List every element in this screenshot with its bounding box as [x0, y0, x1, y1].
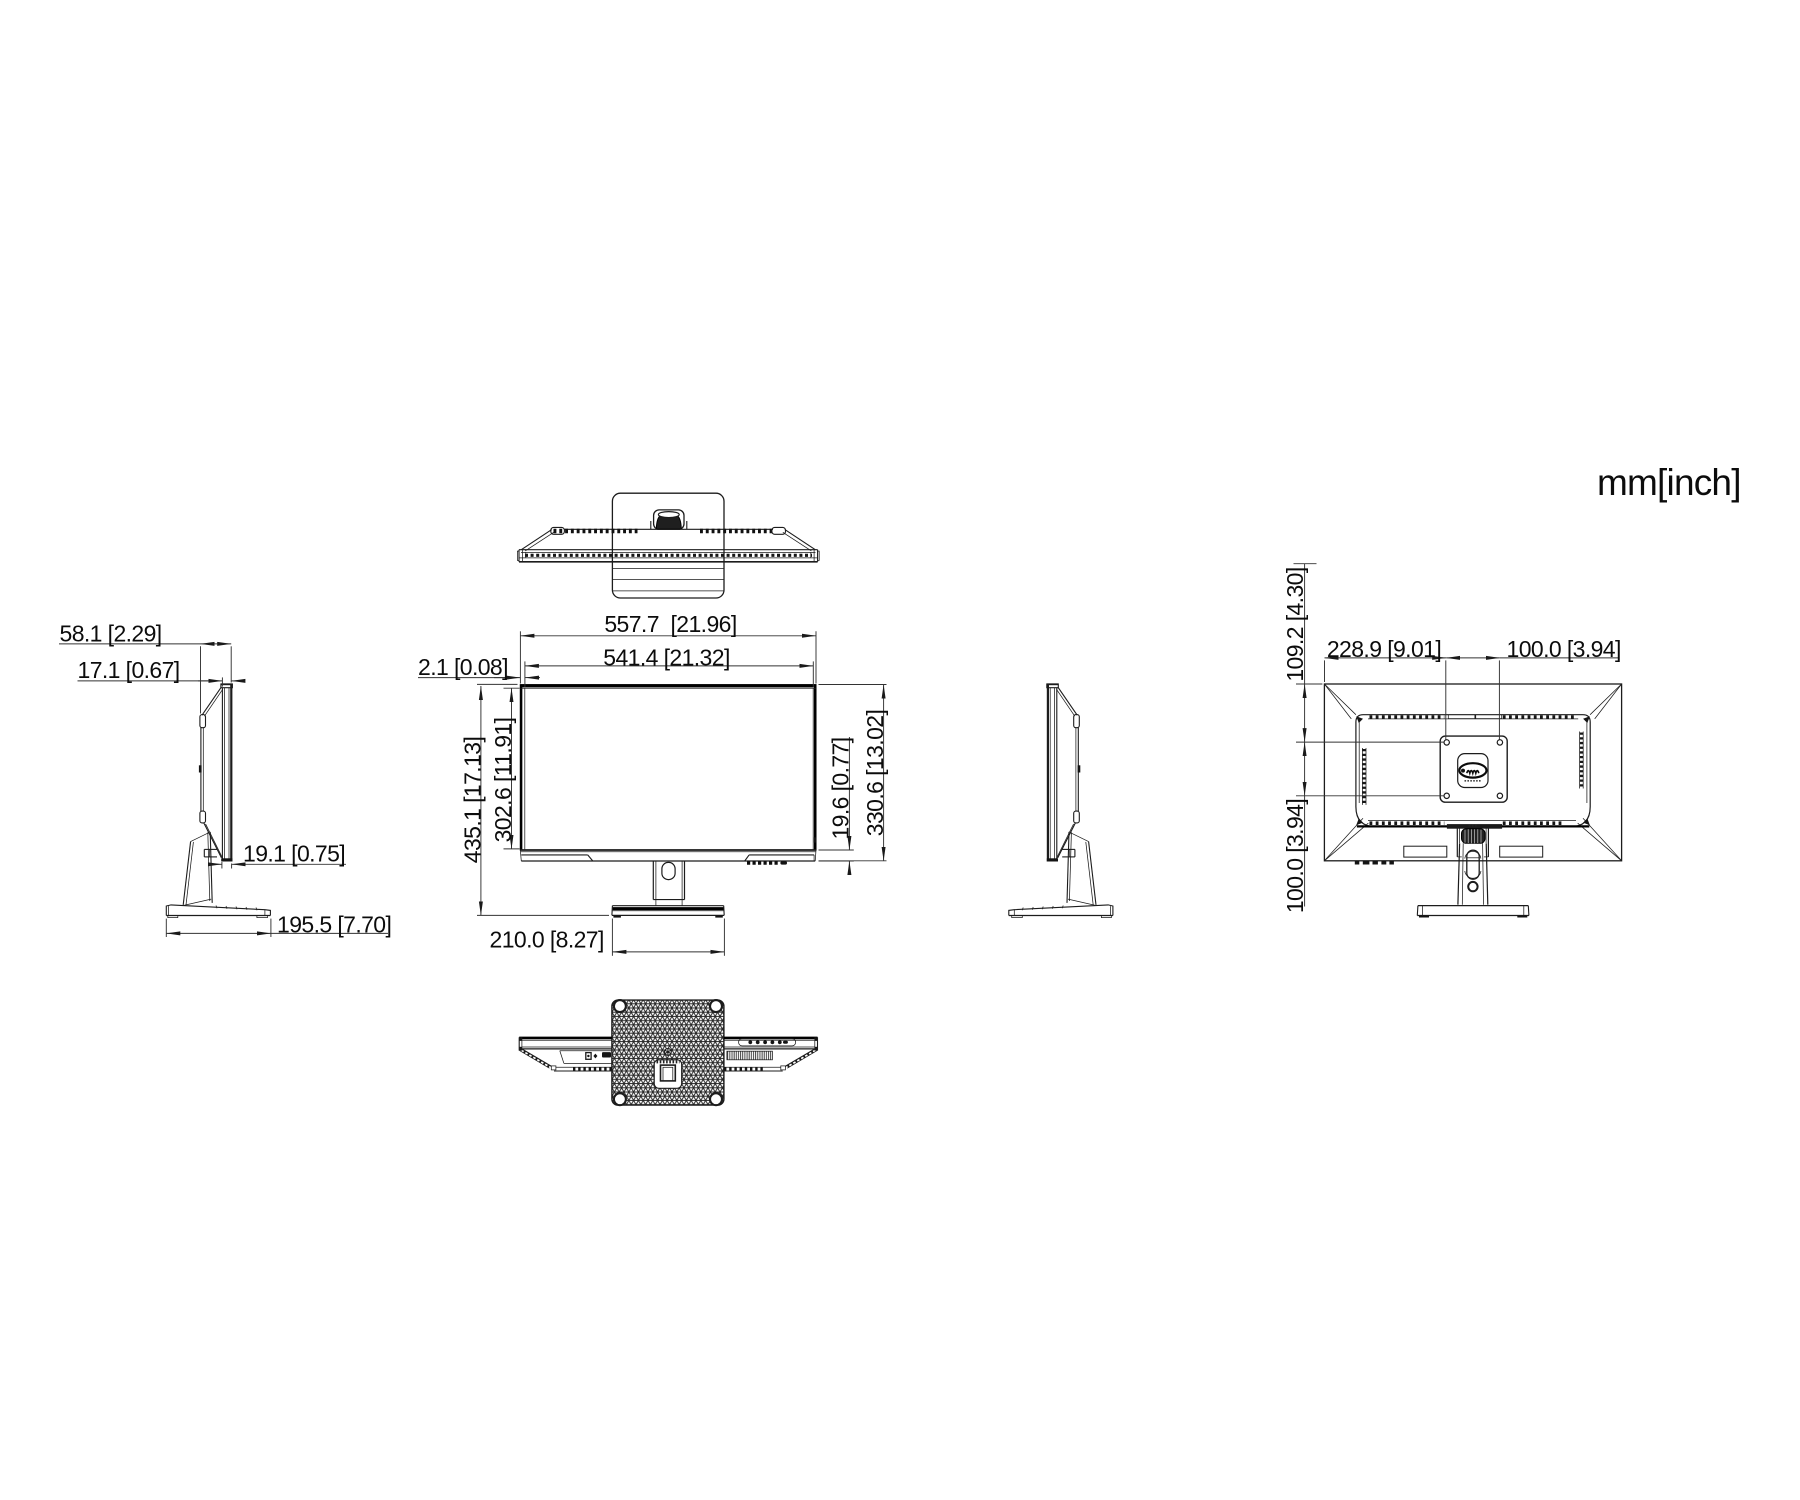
svg-text:435.1 [17.13]: 435.1 [17.13]	[459, 737, 485, 863]
svg-text:541.4 [21.32]: 541.4 [21.32]	[603, 645, 729, 671]
svg-text:195.5 [7.70]: 195.5 [7.70]	[277, 911, 391, 937]
svg-text:58.1 [2.29]: 58.1 [2.29]	[60, 620, 162, 646]
svg-text:109.2 [4.30]: 109.2 [4.30]	[1282, 567, 1308, 681]
svg-text:19.1 [0.75]: 19.1 [0.75]	[243, 840, 345, 866]
svg-text:557.7 [21.96]: 557.7 [21.96]	[604, 611, 736, 637]
svg-text:17.1 [0.67]: 17.1 [0.67]	[78, 657, 180, 683]
svg-text:2.1 [0.08]: 2.1 [0.08]	[418, 654, 508, 680]
svg-text:19.6 [0.77]: 19.6 [0.77]	[827, 737, 853, 839]
svg-text:302.6 [11.91]: 302.6 [11.91]	[490, 718, 516, 843]
svg-text:228.9 [9.01]: 228.9 [9.01]	[1327, 636, 1441, 662]
svg-text:mm[inch]: mm[inch]	[1597, 462, 1741, 503]
svg-text:330.6 [13.02]: 330.6 [13.02]	[862, 710, 888, 836]
svg-text:100.0 [3.94]: 100.0 [3.94]	[1507, 636, 1621, 662]
svg-text:100.0 [3.94]: 100.0 [3.94]	[1282, 799, 1308, 913]
svg-text:210.0 [8.27]: 210.0 [8.27]	[490, 927, 604, 953]
